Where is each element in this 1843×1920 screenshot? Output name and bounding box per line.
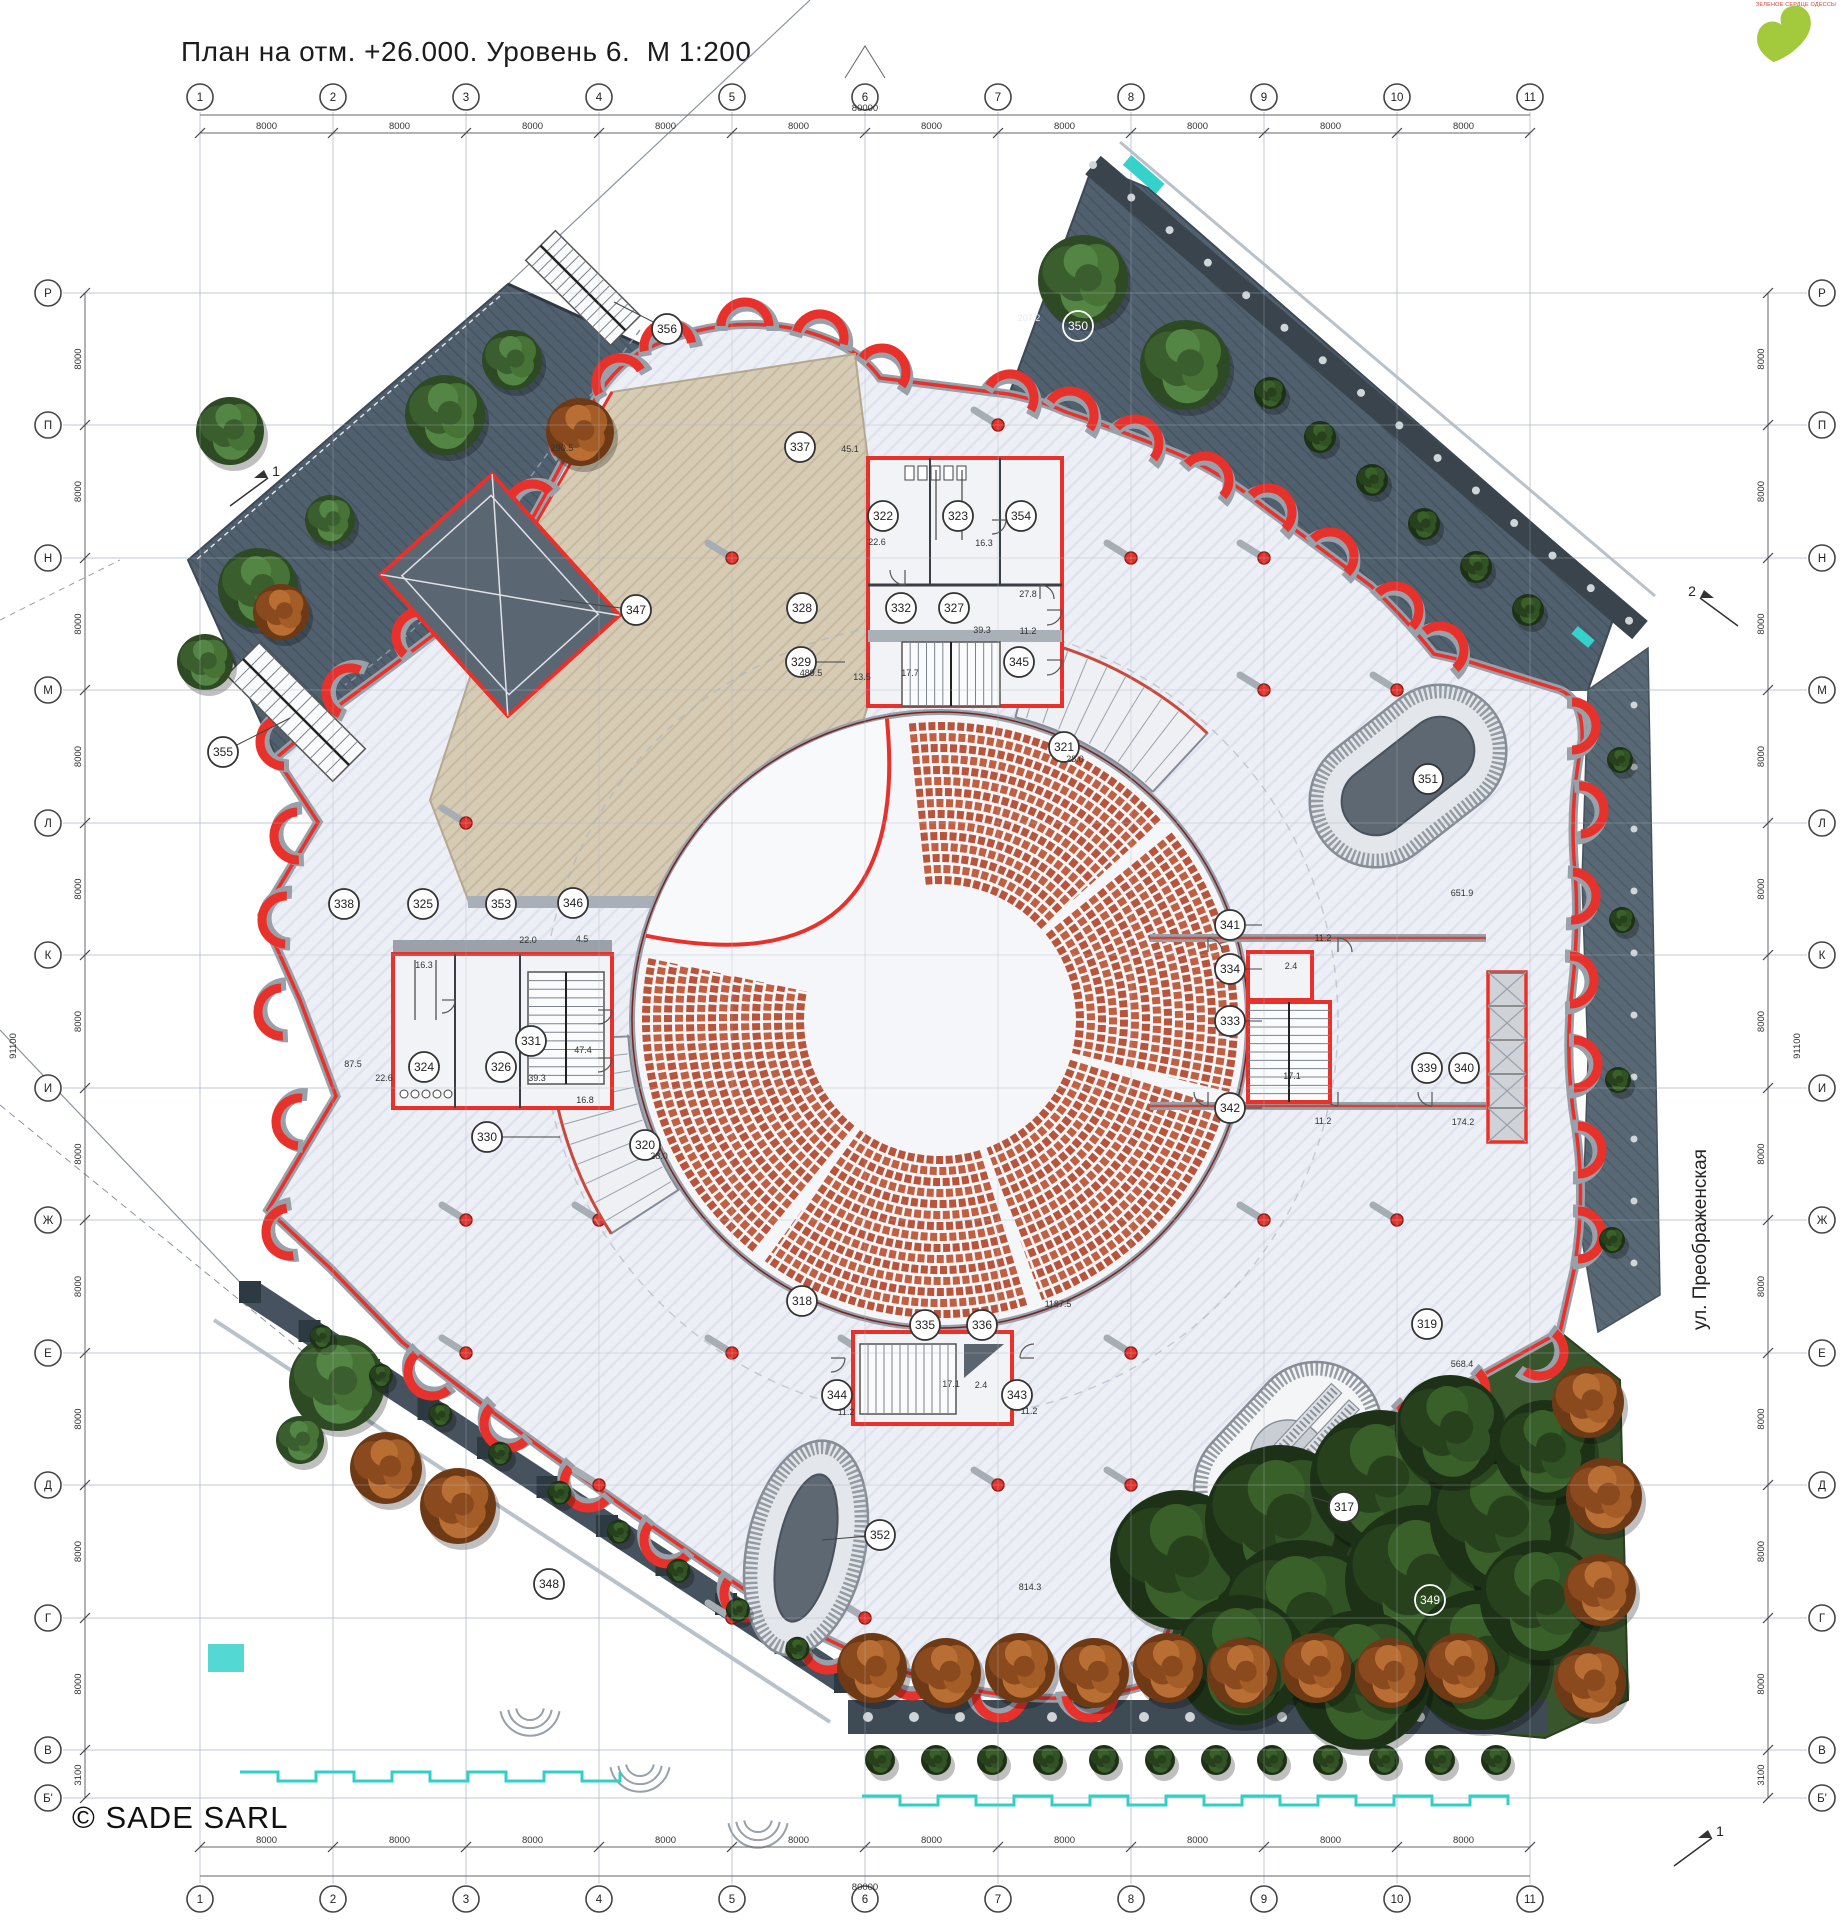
grid-column-bubble-top: 11	[1517, 84, 1543, 110]
grid-row-bubble-right: Е	[1809, 1340, 1835, 1366]
grid-column-bubble-bottom: 9	[1251, 1886, 1277, 1912]
svg-text:Е: Е	[1818, 1348, 1826, 1360]
grid-row-bubble-right: Р	[1809, 280, 1835, 306]
grid-column-bubble-bottom: 4	[586, 1886, 612, 1912]
grid-column-bubble-bottom: 3	[453, 1886, 479, 1912]
grid-dimension: 8000	[1756, 613, 1767, 634]
room-label-354: 354	[1006, 501, 1036, 531]
room-label-322: 322	[868, 501, 898, 531]
svg-text:331: 331	[521, 1034, 541, 1048]
grid-column-bubble-top: 1	[187, 84, 213, 110]
grid-column-bubble-bottom: 7	[985, 1886, 1011, 1912]
grid-column-bubble-top: 5	[719, 84, 745, 110]
room-label-332: 332	[886, 593, 916, 623]
svg-text:Л: Л	[44, 818, 52, 830]
grid-dimension: 8000	[1320, 1835, 1341, 1846]
svg-text:353: 353	[491, 897, 511, 911]
drawing-sheet: План на отм. +26.000. Уровень 6. М 1:200…	[0, 0, 1843, 1920]
svg-text:К: К	[45, 950, 52, 962]
room-label-351: 351	[1413, 764, 1443, 794]
grid-dimension: 8000	[73, 481, 84, 502]
grid-dimension: 91100	[8, 1033, 19, 1059]
grid-dimension: 8000	[73, 1276, 84, 1297]
dimension-text: 568.4	[1451, 1359, 1474, 1369]
svg-text:324: 324	[414, 1060, 434, 1074]
grid-dimension: 8000	[389, 121, 410, 132]
room-label-326: 326	[486, 1052, 516, 1082]
svg-text:К: К	[1819, 950, 1826, 962]
grid-dimension: 8000	[256, 1835, 277, 1846]
svg-text:329: 329	[791, 655, 811, 669]
grid-column-bubble-bottom: 1	[187, 1886, 213, 1912]
svg-text:10: 10	[1391, 92, 1404, 104]
grid-dimension: 8000	[1756, 481, 1767, 502]
room-label-346: 346	[558, 888, 588, 918]
room-label-331: 331	[516, 1026, 546, 1056]
grid-row-bubble-left: Г	[35, 1605, 61, 1631]
dimension-text: 4.5	[576, 934, 589, 944]
room-label-327: 327	[939, 593, 969, 623]
grid-column-bubble-top: 2	[320, 84, 346, 110]
grid-row-bubble-right: П	[1809, 412, 1835, 438]
grid-row-bubble-left: К	[35, 942, 61, 968]
grid-dimension: 8000	[921, 1835, 942, 1846]
svg-text:1: 1	[272, 463, 280, 479]
svg-text:Ж: Ж	[1817, 1215, 1828, 1227]
dimension-text: 39.3	[973, 625, 991, 635]
grid-dimension: 8000	[1756, 1276, 1767, 1297]
room-label-336: 336	[967, 1310, 997, 1340]
svg-text:330: 330	[477, 1130, 497, 1144]
svg-text:9: 9	[1261, 92, 1267, 104]
room-label-323: 323	[943, 501, 973, 531]
logo-heart-icon	[1752, 4, 1826, 66]
svg-text:335: 335	[915, 1318, 935, 1332]
dimension-text: 174.2	[1452, 1117, 1475, 1127]
grid-column-bubble-top: 10	[1384, 84, 1410, 110]
svg-text:320: 320	[635, 1138, 655, 1152]
grid-dimension: 8000	[73, 878, 84, 899]
grid-dimension: 8000	[522, 121, 543, 132]
dimension-text: 11.2	[1020, 626, 1037, 636]
tree	[428, 1403, 456, 1433]
balcony-scallop	[257, 984, 288, 1037]
svg-text:Л: Л	[1818, 818, 1826, 830]
svg-text:323: 323	[948, 509, 968, 523]
grid-column-bubble-bottom: 8	[1118, 1886, 1144, 1912]
grid-dimension: 91100	[1792, 1033, 1803, 1059]
grid-dimension: 8000	[73, 1011, 84, 1032]
svg-text:Р: Р	[44, 288, 52, 300]
floor-plan-canvas: 11223344556677889910101111РРППННММЛЛККИИ…	[0, 0, 1843, 1920]
svg-text:354: 354	[1011, 509, 1031, 523]
grid-dimension: 3100	[73, 1764, 84, 1785]
grid-row-bubble-left: Б'	[35, 1785, 61, 1811]
svg-text:Ж: Ж	[43, 1215, 54, 1227]
logo: ЗЕЛЕНОЕ СЕРДЦЕ ОДЕССЫ	[1752, 4, 1840, 8]
copyright-text: © SADE SARL	[72, 1800, 288, 1836]
svg-text:2: 2	[1688, 583, 1696, 599]
svg-text:4: 4	[596, 92, 603, 104]
svg-text:Н: Н	[44, 553, 52, 565]
grid-row-bubble-right: Н	[1809, 545, 1835, 571]
street-label: ул. Преображенская	[1690, 1149, 1711, 1330]
svg-text:351: 351	[1418, 772, 1438, 786]
room-label-338: 338	[329, 889, 359, 919]
dimension-text: 27.8	[1019, 589, 1037, 599]
grid-row-bubble-left: Д	[35, 1472, 61, 1498]
room-label-324: 324	[409, 1052, 439, 1082]
grid-row-bubble-right: Ж	[1809, 1207, 1835, 1233]
grid-column-bubble-bottom: 10	[1384, 1886, 1410, 1912]
room-label-353: 353	[486, 889, 516, 919]
room-label-348: 348	[534, 1569, 564, 1599]
svg-text:И: И	[44, 1083, 52, 1095]
svg-text:348: 348	[539, 1577, 559, 1591]
svg-text:322: 322	[873, 509, 893, 523]
grid-dimension: 8000	[256, 121, 277, 132]
grid-dimension: 8000	[921, 121, 942, 132]
svg-text:328: 328	[792, 601, 812, 615]
grid-row-bubble-left: Е	[35, 1340, 61, 1366]
svg-text:345: 345	[1009, 655, 1029, 669]
grid-dimension: 8000	[1054, 1835, 1075, 1846]
dimension-text: 2.4	[1285, 961, 1298, 971]
svg-text:6: 6	[862, 1894, 868, 1906]
grid-dimension: 8000	[1756, 1673, 1767, 1694]
svg-text:4: 4	[596, 1894, 603, 1906]
dimension-text: 47.4	[574, 1045, 592, 1055]
grid-dimension: 8000	[1756, 348, 1767, 369]
dimension-text: 17.1	[942, 1379, 960, 1389]
grid-column-bubble-top: 3	[453, 84, 479, 110]
svg-text:Д: Д	[44, 1480, 52, 1492]
dimension-text: 16.8	[576, 1095, 594, 1105]
grid-dimension: 8000	[1453, 1835, 1474, 1846]
svg-text:340: 340	[1454, 1061, 1474, 1075]
svg-text:М: М	[43, 685, 53, 697]
svg-text:347: 347	[626, 603, 646, 617]
room-label-337: 337	[785, 432, 815, 462]
dimension-text: 39.3	[528, 1073, 546, 1083]
svg-text:317: 317	[1334, 1500, 1354, 1514]
svg-text:Е: Е	[44, 1348, 52, 1360]
grid-column-bubble-bottom: 2	[320, 1886, 346, 1912]
svg-text:344: 344	[827, 1388, 847, 1402]
grid-dimension: 8000	[73, 1673, 84, 1694]
room-label-340: 340	[1449, 1053, 1479, 1083]
svg-text:341: 341	[1220, 918, 1240, 932]
dimension-text: 22.6	[375, 1073, 393, 1083]
dimension-text: 16.3	[415, 960, 433, 970]
dimension-text: 17.1	[1283, 1071, 1301, 1081]
svg-text:346: 346	[563, 896, 583, 910]
grid-dimension: 8000	[1320, 121, 1341, 132]
svg-text:350: 350	[1068, 319, 1088, 333]
svg-text:339: 339	[1417, 1061, 1437, 1075]
svg-text:319: 319	[1417, 1317, 1437, 1331]
grid-row-bubble-left: Ж	[35, 1207, 61, 1233]
svg-text:1: 1	[197, 1894, 203, 1906]
grid-dimension: 8000	[1756, 1011, 1767, 1032]
grid-dimension: 3100	[1756, 1764, 1767, 1785]
dimension-text: 87.5	[344, 1059, 362, 1069]
grid-dimension: 8000	[73, 1408, 84, 1429]
grid-row-bubble-left: В	[35, 1737, 61, 1763]
dimension-text: 45.1	[841, 444, 859, 454]
svg-text:В: В	[1818, 1745, 1826, 1757]
grid-dimension: 8000	[1054, 121, 1075, 132]
svg-text:Р: Р	[1818, 288, 1826, 300]
grid-dimension: 8000	[1756, 1541, 1767, 1562]
svg-text:318: 318	[792, 1294, 812, 1308]
svg-text:349: 349	[1420, 1593, 1440, 1607]
grid-column-bubble-top: 7	[985, 84, 1011, 110]
grid-row-bubble-right: В	[1809, 1737, 1835, 1763]
grid-dimension: 8000	[655, 1835, 676, 1846]
svg-text:355: 355	[213, 745, 233, 759]
dimension-text: 11.2	[838, 1407, 855, 1417]
svg-text:П: П	[1818, 420, 1826, 432]
svg-text:325: 325	[413, 897, 433, 911]
grid-dimension: 8000	[788, 1835, 809, 1846]
svg-text:П: П	[44, 420, 52, 432]
dimension-text: 290.5	[551, 443, 574, 453]
svg-text:327: 327	[944, 601, 964, 615]
svg-text:1: 1	[197, 92, 203, 104]
balcony-scallop	[274, 1092, 307, 1146]
svg-text:Б': Б'	[43, 1793, 53, 1805]
grid-column-bubble-top: 4	[586, 84, 612, 110]
tree	[666, 1559, 694, 1589]
grid-dimension: 8000	[1756, 746, 1767, 767]
dimension-text: 814.3	[1019, 1582, 1042, 1592]
svg-text:10: 10	[1391, 1894, 1404, 1906]
room-label-339: 339	[1412, 1053, 1442, 1083]
dimension-text: 28.0	[1066, 754, 1084, 764]
grid-column-bubble-bottom: 5	[719, 1886, 745, 1912]
grid-column-bubble-bottom: 11	[1517, 1886, 1543, 1912]
svg-text:338: 338	[334, 897, 354, 911]
svg-text:356: 356	[657, 322, 677, 336]
svg-text:343: 343	[1007, 1388, 1027, 1402]
svg-text:321: 321	[1054, 740, 1074, 754]
grid-dimension: 8000	[1756, 1408, 1767, 1429]
grid-row-bubble-left: Н	[35, 545, 61, 571]
svg-text:333: 333	[1220, 1014, 1240, 1028]
grid-row-bubble-right: Д	[1809, 1472, 1835, 1498]
grid-row-bubble-right: М	[1809, 677, 1835, 703]
svg-text:342: 342	[1220, 1101, 1240, 1115]
section-mark-1: 1	[1674, 1823, 1724, 1866]
svg-text:7: 7	[995, 1894, 1001, 1906]
svg-text:332: 332	[891, 601, 911, 615]
svg-text:11: 11	[1524, 1894, 1536, 1906]
dimension-text: 22.0	[519, 935, 537, 945]
grid-dimension: 8000	[73, 1143, 84, 1164]
tree	[350, 1432, 426, 1510]
svg-text:В: В	[44, 1745, 52, 1757]
grid-dimension: 8000	[73, 1541, 84, 1562]
room-label-344: 344	[822, 1380, 852, 1410]
grid-dimension: 8000	[1453, 121, 1474, 132]
grid-dimension: 80000	[852, 103, 878, 114]
svg-text:352: 352	[870, 1528, 890, 1542]
dimension-text: 651.9	[1451, 888, 1474, 898]
grid-row-bubble-left: П	[35, 412, 61, 438]
svg-text:3: 3	[463, 1894, 469, 1906]
grid-row-bubble-right: Б'	[1809, 1785, 1835, 1811]
svg-text:2: 2	[330, 1894, 336, 1906]
tree	[607, 1520, 635, 1550]
dimension-text: 11.2	[1021, 1406, 1038, 1416]
grid-row-bubble-left: М	[35, 677, 61, 703]
svg-text:3: 3	[463, 92, 469, 104]
grid-row-bubble-right: И	[1809, 1075, 1835, 1101]
section-mark-2: 2	[1688, 583, 1738, 626]
dimension-text: 1187.5	[1045, 1299, 1072, 1309]
svg-text:М: М	[1817, 685, 1827, 697]
svg-text:5: 5	[729, 92, 735, 104]
dimension-text: 28.0	[650, 1151, 668, 1161]
svg-text:336: 336	[972, 1318, 992, 1332]
svg-text:8: 8	[1128, 92, 1134, 104]
grid-row-bubble-left: Р	[35, 280, 61, 306]
grid-row-bubble-right: Л	[1809, 810, 1835, 836]
svg-text:8: 8	[1128, 1894, 1134, 1906]
svg-text:И: И	[1818, 1083, 1826, 1095]
room-label-335: 335	[910, 1310, 940, 1340]
room-label-345: 345	[1004, 647, 1034, 677]
svg-text:Н: Н	[1818, 553, 1826, 565]
grid-dimension: 8000	[788, 121, 809, 132]
grid-dimension: 8000	[73, 746, 84, 767]
room-label-325: 325	[408, 889, 438, 919]
svg-text:5: 5	[729, 1894, 735, 1906]
room-label-328: 328	[787, 593, 817, 623]
grid-dimension: 8000	[389, 1835, 410, 1846]
svg-text:2: 2	[330, 92, 336, 104]
grid-dimension: 8000	[522, 1835, 543, 1846]
dimension-text: 207.2	[1018, 313, 1041, 323]
tree	[420, 1468, 500, 1550]
grid-row-bubble-right: Г	[1809, 1605, 1835, 1631]
grid-dimension: 8000	[1756, 878, 1767, 899]
svg-text:337: 337	[790, 440, 810, 454]
dimension-text: 16.3	[975, 538, 993, 548]
room-label-319: 319	[1412, 1309, 1442, 1339]
dimension-text: 489.5	[800, 668, 823, 678]
grid-dimension: 8000	[655, 121, 676, 132]
dimension-text: 2.4	[975, 1380, 988, 1390]
grid-row-bubble-left: И	[35, 1075, 61, 1101]
dimension-text: 22.6	[868, 537, 886, 547]
grid-dimension: 8000	[73, 613, 84, 634]
svg-text:334: 334	[1220, 962, 1240, 976]
grid-dimension: 8000	[1187, 1835, 1208, 1846]
dimension-text: 11.2	[1315, 933, 1332, 943]
grid-row-bubble-left: Л	[35, 810, 61, 836]
svg-text:Г: Г	[45, 1613, 52, 1625]
svg-text:Г: Г	[1819, 1613, 1826, 1625]
grid-dimension: 8000	[1187, 121, 1208, 132]
dimension-text: 17.7	[901, 668, 919, 678]
grid-dimension: 8000	[1756, 1143, 1767, 1164]
dimension-text: 13.5	[853, 672, 871, 682]
grid-dimension: 80000	[852, 1882, 878, 1893]
tree	[196, 397, 268, 471]
grid-column-bubble-top: 9	[1251, 84, 1277, 110]
svg-text:7: 7	[995, 92, 1001, 104]
grid-column-bubble-top: 8	[1118, 84, 1144, 110]
svg-text:11: 11	[1524, 92, 1536, 104]
grid-row-bubble-right: К	[1809, 942, 1835, 968]
svg-text:Б': Б'	[1817, 1793, 1827, 1805]
grid-dimension: 8000	[73, 348, 84, 369]
svg-text:9: 9	[1261, 1894, 1267, 1906]
room-label-318: 318	[787, 1286, 817, 1316]
svg-text:Д: Д	[1818, 1480, 1826, 1492]
svg-text:326: 326	[491, 1060, 511, 1074]
svg-text:1: 1	[1716, 1823, 1724, 1839]
dimension-text: 11.2	[1315, 1116, 1332, 1126]
